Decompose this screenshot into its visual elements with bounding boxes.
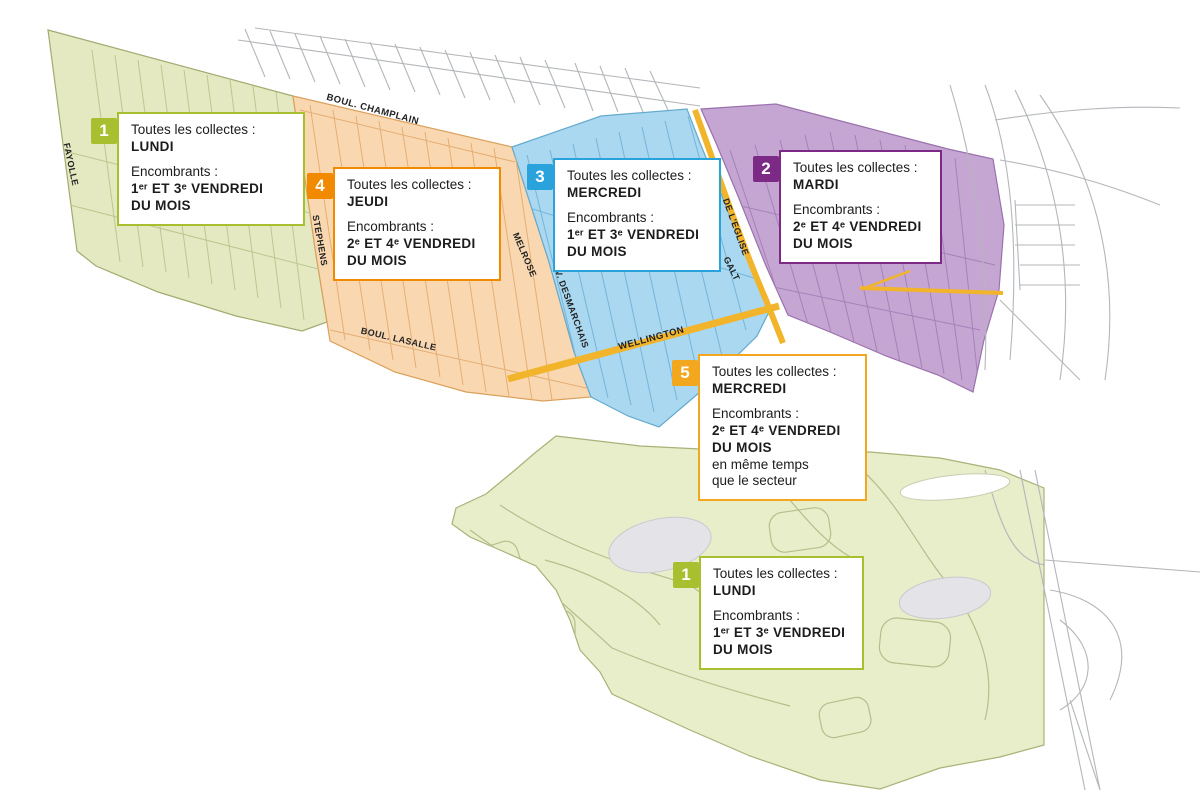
collection-sectors-map: FAYOLLE BOUL. CHAMPLAIN STEPHENS MELROSE… — [0, 0, 1200, 800]
sector-badge: 1 — [673, 562, 699, 588]
bulky-label: Encombrants : — [712, 406, 855, 423]
sector-badge: 4 — [307, 173, 333, 199]
collections-label: Toutes les collectes : — [131, 122, 293, 139]
sector-info-box-5: 5 Toutes les collectes : MERCREDI Encomb… — [698, 354, 867, 501]
collections-label: Toutes les collectes : — [712, 364, 855, 381]
collection-day: LUNDI — [131, 139, 293, 156]
bulky-schedule: 1ᵉʳ ET 3ᵉ VENDREDI DU MOIS — [567, 227, 709, 260]
bulky-schedule: 2ᵉ ET 4ᵉ VENDREDI DU MOIS — [793, 219, 930, 252]
collections-label: Toutes les collectes : — [793, 160, 930, 177]
sector-badge: 5 — [672, 360, 698, 386]
collection-day: MERCREDI — [712, 381, 855, 398]
bulky-schedule: 2ᵉ ET 4ᵉ VENDREDI DU MOIS — [347, 236, 489, 269]
bulky-label: Encombrants : — [793, 202, 930, 219]
collection-day: MERCREDI — [567, 185, 709, 202]
bulky-schedule: 2ᵉ ET 4ᵉ VENDREDI DU MOIS — [712, 423, 855, 456]
collection-day: MARDI — [793, 177, 930, 194]
collection-day: JEUDI — [347, 194, 489, 211]
sector-badge: 2 — [753, 156, 779, 182]
sector-badge: 3 — [527, 164, 553, 190]
bulky-label: Encombrants : — [347, 219, 489, 236]
sector-info-box-4: 4 Toutes les collectes : JEUDI Encombran… — [333, 167, 501, 281]
bulky-label: Encombrants : — [713, 608, 852, 625]
collection-day: LUNDI — [713, 583, 852, 600]
collections-label: Toutes les collectes : — [347, 177, 489, 194]
collections-label: Toutes les collectes : — [713, 566, 852, 583]
sector-info-box-3: 3 Toutes les collectes : MERCREDI Encomb… — [553, 158, 721, 272]
bulky-label: Encombrants : — [131, 164, 293, 181]
bulky-note: en même temps que le secteur — [712, 457, 824, 490]
sector-badge: 1 — [91, 118, 117, 144]
bulky-label: Encombrants : — [567, 210, 709, 227]
bulky-schedule: 1ᵉʳ ET 3ᵉ VENDREDI DU MOIS — [713, 625, 852, 658]
bulky-schedule: 1ᵉʳ ET 3ᵉ VENDREDI DU MOIS — [131, 181, 277, 214]
sector-info-box-1: 1 Toutes les collectes : LUNDI Encombran… — [117, 112, 305, 226]
collections-label: Toutes les collectes : — [567, 168, 709, 185]
sector-info-box-island-1: 1 Toutes les collectes : LUNDI Encombran… — [699, 556, 864, 670]
sector-info-box-2: 2 Toutes les collectes : MARDI Encombran… — [779, 150, 942, 264]
